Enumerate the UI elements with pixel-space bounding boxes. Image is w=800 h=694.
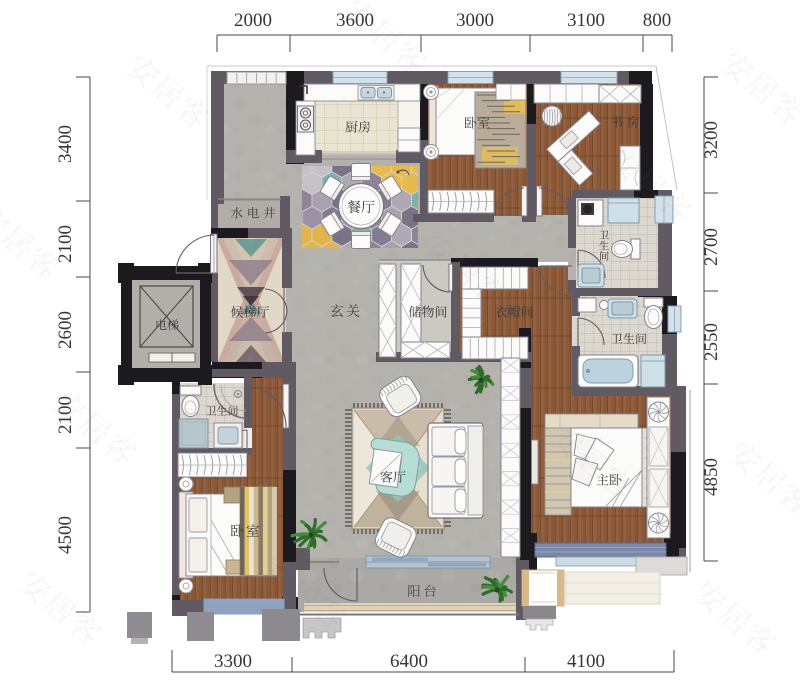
- svg-text:2700: 2700: [701, 228, 722, 266]
- svg-text:2000: 2000: [234, 10, 272, 31]
- svg-text:4100: 4100: [567, 651, 605, 672]
- svg-text:3300: 3300: [214, 651, 252, 672]
- svg-text:2550: 2550: [701, 323, 722, 361]
- svg-text:800: 800: [643, 10, 672, 31]
- svg-text:2600: 2600: [55, 311, 76, 349]
- svg-text:2100: 2100: [55, 225, 76, 263]
- svg-text:3000: 3000: [456, 10, 494, 31]
- svg-text:3200: 3200: [701, 121, 722, 159]
- svg-text:4500: 4500: [55, 516, 76, 554]
- svg-text:3100: 3100: [567, 10, 605, 31]
- svg-text:3400: 3400: [55, 125, 76, 163]
- svg-text:6400: 6400: [390, 651, 428, 672]
- svg-text:4850: 4850: [701, 458, 722, 496]
